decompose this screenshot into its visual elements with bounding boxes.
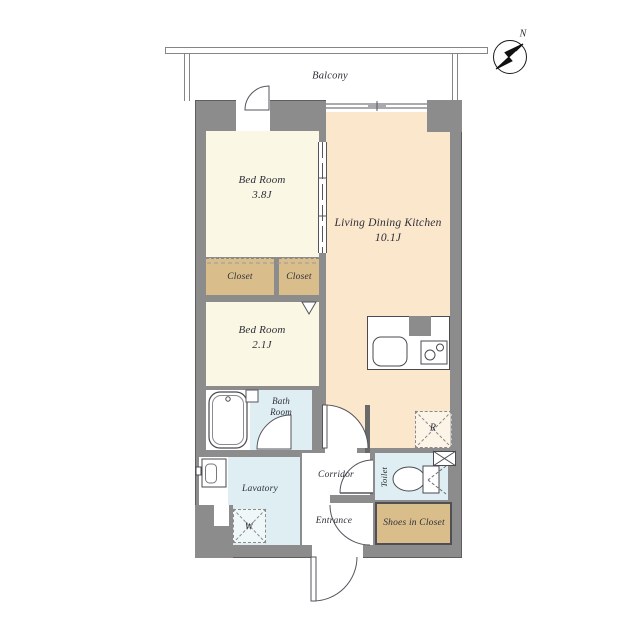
pillar-top-right	[427, 100, 462, 132]
balcony-label: Balcony	[312, 71, 348, 82]
refrigerator-label: R	[430, 423, 436, 434]
entrance-label: Entrance	[316, 516, 352, 526]
washing-machine-label: W	[245, 522, 254, 533]
ldk-balcony-window-opening	[326, 100, 427, 112]
room-ldk	[326, 112, 450, 448]
balcony-railing-right	[452, 54, 458, 101]
bedroom-2-label: Bed Room 2.1J	[238, 323, 285, 353]
entrance-door-icon	[311, 557, 357, 601]
bedroom-1-label: Bed Room 3.8J	[238, 173, 285, 203]
washbasin-niche	[199, 457, 228, 505]
balcony-railing-left	[184, 54, 190, 101]
compass-north-label: N	[520, 29, 527, 40]
sliding-door-bedroom1-ldk	[318, 142, 327, 253]
closet-right-label: Closet	[286, 272, 311, 282]
kitchen-pillar	[409, 316, 431, 336]
lavatory-label: Lavatory	[242, 484, 278, 494]
compass-circle	[493, 40, 527, 74]
corridor-entrance-opening	[302, 495, 330, 503]
wall-stub-ldk-door	[365, 405, 370, 453]
bedroom-1-balcony-opening	[236, 100, 270, 131]
pipe-space-notch	[214, 505, 229, 526]
toilet-label: Toilet	[379, 467, 389, 487]
shoes-in-closet-label: Shoes in Closet	[383, 518, 445, 528]
floor-plan: Balcony	[0, 0, 640, 640]
corridor-ldk-door-opening	[325, 448, 357, 453]
bathroom-label: Bath Room	[270, 396, 292, 418]
duct-box	[433, 451, 456, 466]
ldk-label: Living Dining Kitchen 10.1J	[334, 216, 441, 246]
balcony-railing-top	[165, 47, 488, 54]
corridor-label: Corridor	[318, 470, 354, 480]
entrance-door-opening	[312, 545, 363, 558]
closet-left-label: Closet	[227, 272, 252, 282]
bathtub-niche	[206, 390, 250, 450]
